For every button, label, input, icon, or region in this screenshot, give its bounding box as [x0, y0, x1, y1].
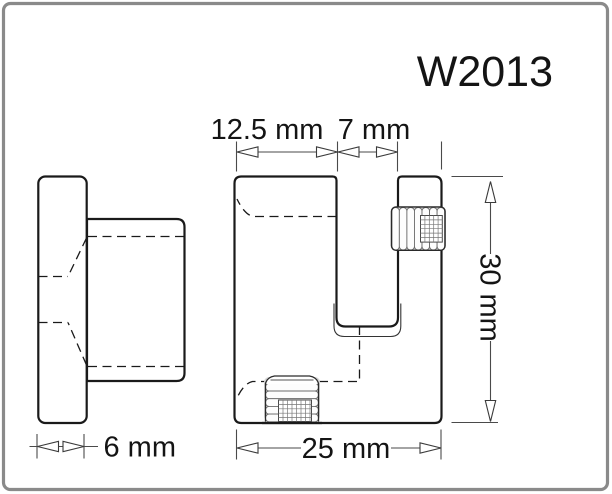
part-number-label: W2013 [417, 48, 553, 96]
technical-drawing: W2013 [0, 0, 612, 494]
slot-width-label: 7 mm [338, 114, 411, 146]
height-label: 30 mm [474, 253, 506, 342]
slot-offset-label: 12.5 mm [211, 114, 324, 146]
side-set-screw [391, 207, 446, 251]
thread-grid-face [279, 400, 312, 422]
bottom-set-screw [262, 376, 322, 423]
thickness-label: 6 mm [104, 432, 177, 464]
side-boss-outline [87, 219, 185, 381]
width-label: 25 mm [302, 433, 391, 465]
side-plate-outline [38, 177, 86, 424]
drawing-canvas: W2013 [0, 0, 612, 494]
